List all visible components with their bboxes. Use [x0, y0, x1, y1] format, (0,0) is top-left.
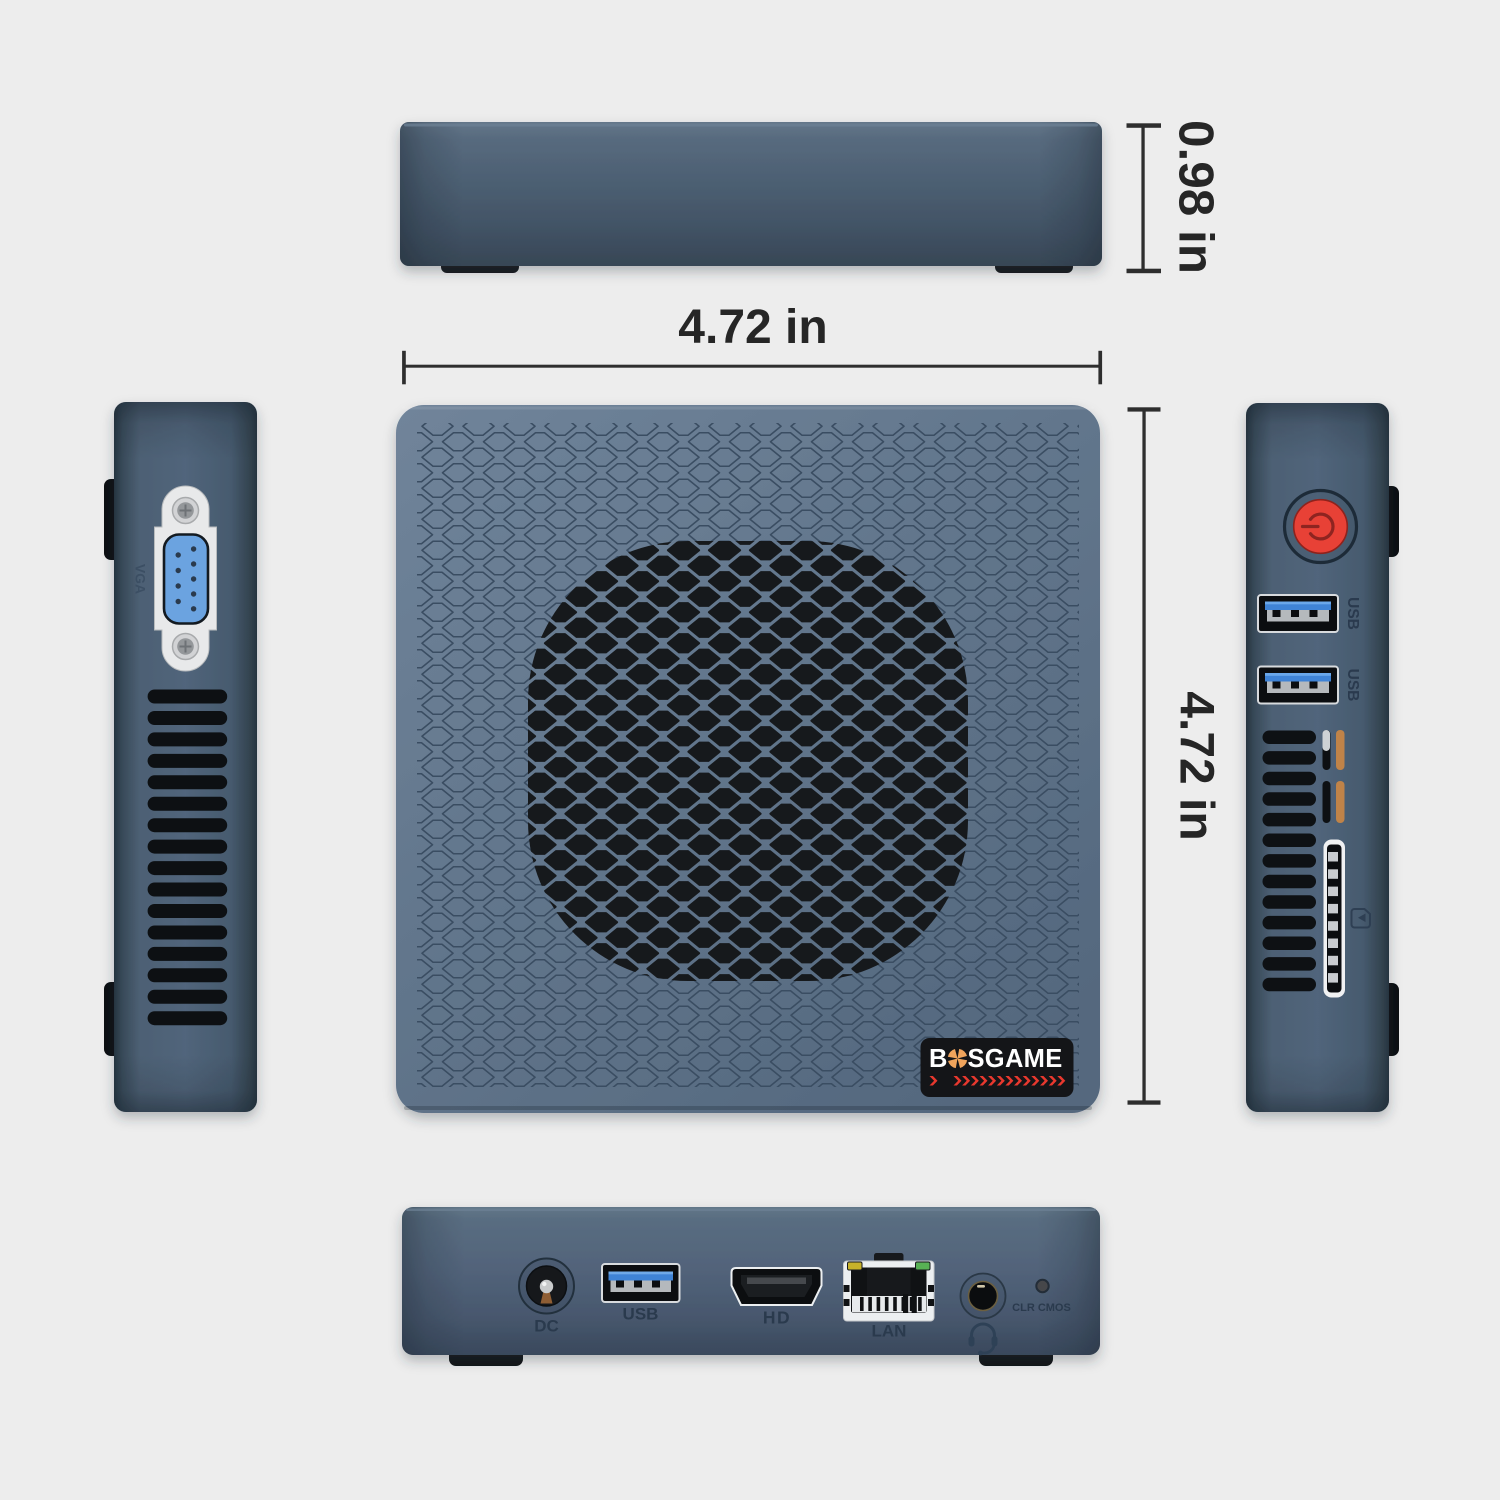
- svg-text:USB: USB: [1344, 669, 1361, 702]
- svg-text:4.72 in: 4.72 in: [678, 301, 827, 354]
- svg-text:HD: HD: [763, 1308, 791, 1328]
- svg-text:DC: DC: [534, 1317, 559, 1336]
- svg-text:CLR CMOS: CLR CMOS: [1012, 1302, 1071, 1314]
- svg-text:B: B: [929, 1045, 947, 1073]
- svg-text:SGAME: SGAME: [968, 1045, 1063, 1073]
- svg-text:4.72 in: 4.72 in: [1170, 691, 1223, 840]
- svg-text:USB: USB: [1344, 597, 1361, 630]
- svg-text:USB: USB: [623, 1305, 659, 1324]
- svg-text:0.98 in: 0.98 in: [1169, 120, 1224, 274]
- svg-text:VGA: VGA: [133, 564, 149, 594]
- svg-text:LAN: LAN: [872, 1322, 907, 1341]
